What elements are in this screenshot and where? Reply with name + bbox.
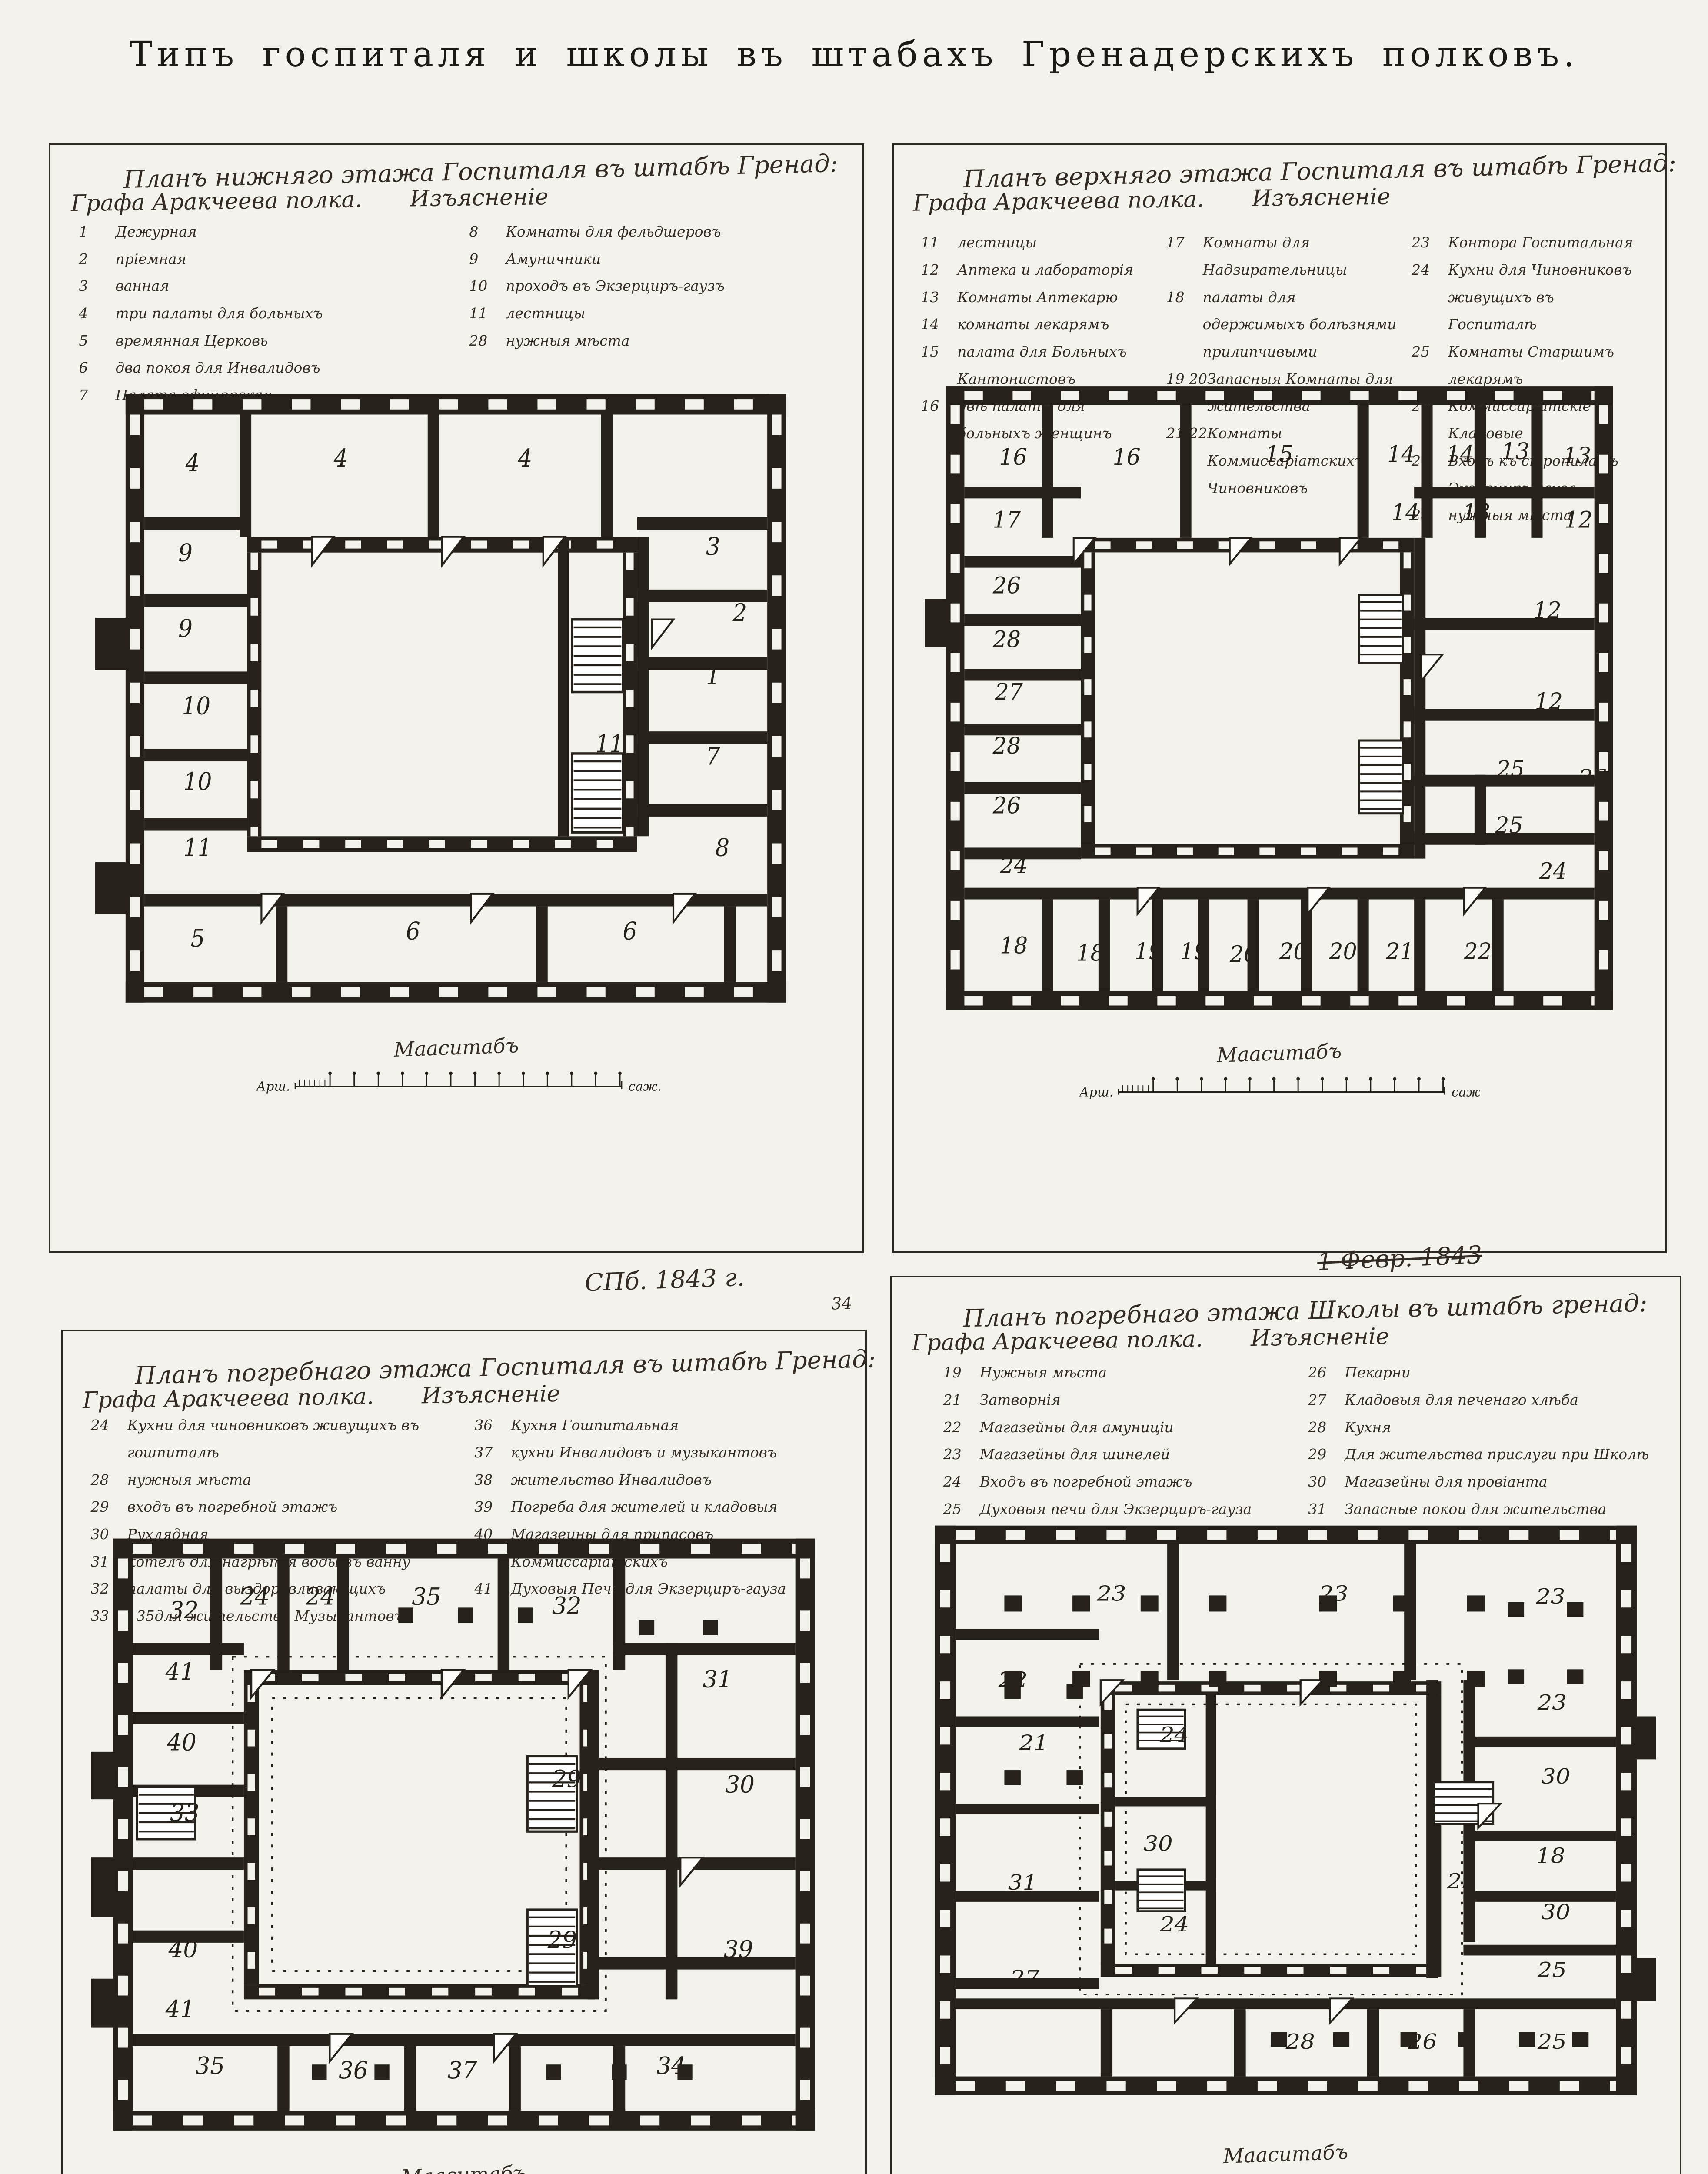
room-number: 30 — [1542, 1764, 1571, 1788]
legend-item-number: 8 — [469, 218, 506, 246]
legend-item: 11лестницы — [921, 229, 1155, 257]
scale-block: Мааситабъарш.саж. — [63, 2163, 865, 2174]
room-number: 18 — [1076, 940, 1104, 967]
room-number: 12 — [1565, 507, 1592, 533]
legend-item-text: Комнаты для Надзирательницы — [1203, 229, 1401, 283]
room-number: 24 — [1159, 1723, 1189, 1747]
room-number: 26 — [992, 793, 1021, 819]
scale-block: МааситабъАрш.саж. — [50, 1036, 862, 1099]
room-number: 16 — [1112, 444, 1140, 471]
legend-item: 8Комнаты для фельдшеровъ — [469, 218, 842, 246]
legend-item: 39Погреба для жителей и кладовыя — [474, 1494, 845, 1521]
legend-item: 19Нужныя мѣста — [943, 1359, 1295, 1387]
floor-plan-drawing: 23232322213127233018302524302429282625 — [916, 1515, 1656, 2106]
legend-item-number: 28 — [469, 327, 506, 355]
room-number: 32 — [169, 1596, 199, 1624]
legend-item-number: 11 — [921, 229, 957, 257]
legend-item-number: 12 — [921, 257, 957, 284]
room-number: 13 — [1502, 438, 1529, 465]
room-number: 15 — [1265, 441, 1293, 468]
legend-title: Изъясненіе — [1251, 1324, 1389, 1351]
legend-item-text: пріемная — [115, 246, 452, 273]
legend-item: 28Кухня — [1308, 1414, 1660, 1441]
legend-item: 14комнаты лекарямъ — [921, 311, 1155, 338]
legend-item: 21Затворнія — [943, 1387, 1295, 1414]
room-number: 28 — [1285, 2030, 1315, 2054]
room-number: 23 — [1097, 1581, 1126, 1606]
legend-item-number: 28 — [91, 1467, 127, 1494]
scanned-sheet: Типъ госпиталя и школы въ штабахъ Гренад… — [0, 0, 1708, 2174]
room-number: 12 — [1535, 689, 1563, 715]
panel-hospital-ground-floor: Планъ нижняго этажа Госпиталя въ штабѣ Г… — [49, 143, 864, 1253]
room-number: 26 — [1408, 2030, 1437, 2054]
room-number: 25 — [1496, 756, 1524, 783]
legend-title: Изъясненіе — [410, 184, 548, 212]
legend-item-number: 38 — [474, 1467, 511, 1494]
scale-block: Мааситабъарш.саж. — [892, 2142, 1680, 2174]
legend-item-text: ванная — [115, 273, 452, 300]
legend-item-text: лестницы — [957, 229, 1155, 257]
legend-item: 27Кладовыя для печенаго хлѣба — [1308, 1387, 1660, 1414]
room-number: 37 — [447, 2056, 477, 2084]
room-number: 30 — [725, 1770, 755, 1798]
legend-item: 26Пекарни — [1308, 1359, 1660, 1387]
room-number: 21 — [1019, 1731, 1049, 1755]
legend-item-text: Амуничники — [506, 246, 842, 273]
room-number: 6 — [623, 917, 637, 946]
legend-item: 17Комнаты для Надзирательницы — [1166, 229, 1401, 283]
legend-item: 24Кухни для чиновниковъ живущихъ въ гошп… — [91, 1412, 462, 1466]
room-number: 40 — [168, 1935, 198, 1963]
room-number: 35 — [195, 2052, 225, 2080]
legend-item-number: 27 — [1308, 1387, 1345, 1414]
legend-item-number: 10 — [469, 273, 506, 300]
legend-item-number: 24 — [943, 1468, 980, 1496]
legend: 19Нужныя мѣста21Затворнія22Магазейны для… — [919, 1359, 1660, 1523]
legend-item-text: Аптека и лабораторія — [957, 257, 1155, 284]
room-number: 8 — [715, 833, 729, 862]
archive-annotation-1843: СПб. 1843 г. 34 — [584, 1264, 745, 1297]
room-number: 18 — [1536, 1844, 1565, 1868]
room-number: 23 — [1536, 1584, 1565, 1608]
ruler-unit-label: саж. — [629, 1079, 662, 1094]
legend-column: 1Дежурная2пріемная3ванная4три палаты для… — [79, 218, 452, 409]
room-number: 20 — [1229, 941, 1258, 968]
legend-item-number: 11 — [469, 300, 506, 327]
legend-item: 36Кухня Гошпитальная — [474, 1412, 845, 1439]
legend-item-text: Дежурная — [115, 218, 452, 246]
room-number: 11 — [595, 729, 624, 758]
ruler-unit-label: саж. — [1452, 1084, 1480, 1099]
legend-item-number: 24 — [91, 1412, 127, 1466]
room-number: 4 — [333, 444, 348, 473]
room-number: 35 — [412, 1582, 441, 1610]
legend-column: 26Пекарни27Кладовыя для печенаго хлѣба28… — [1308, 1359, 1660, 1523]
legend-column: 19Нужныя мѣста21Затворнія22Магазейны для… — [943, 1359, 1295, 1523]
room-number: 39 — [723, 1935, 753, 1963]
legend-title: Изъясненіе — [422, 1381, 560, 1409]
room-number: 27 — [1010, 1966, 1039, 1990]
scale-label: Мааситабъ — [1217, 1039, 1342, 1067]
room-number: 20 — [1328, 939, 1357, 965]
room-number: 34 — [656, 2052, 686, 2080]
legend-item: 28нужныя мѣста — [91, 1467, 462, 1494]
legend-item-text: Кухни для Чиновниковъ живущихъ въ Госпит… — [1448, 257, 1646, 338]
legend-item: 23Контора Госпитальная — [1412, 229, 1646, 257]
room-number: 9 — [178, 614, 193, 643]
room-number: 24 — [999, 853, 1028, 879]
room-number: 19 — [1135, 939, 1162, 965]
room-number: 30 — [1144, 1831, 1173, 1856]
legend-item-text: Контора Госпитальная — [1448, 229, 1646, 257]
room-number: 27 — [995, 679, 1023, 706]
legend-item: 37кухни Инвалидовъ и музыкантовъ — [474, 1439, 845, 1467]
legend-item-number: 4 — [79, 300, 115, 327]
room-number: 31 — [1008, 1871, 1037, 1895]
annotation-text: СПб. 1843 г. — [584, 1264, 745, 1297]
legend-item-number: 37 — [474, 1439, 511, 1467]
room-number: 2 — [732, 598, 747, 627]
room-number: 13 — [1563, 443, 1591, 469]
page-title: Типъ госпиталя и школы въ штабахъ Гренад… — [0, 34, 1708, 74]
legend-item-text: Для жительства прислуги при Школѣ — [1345, 1441, 1660, 1468]
room-number: 20 — [1279, 939, 1307, 965]
room-number: 36 — [339, 2056, 368, 2084]
legend-item: 22Магазейны для амуниціи — [943, 1414, 1295, 1441]
room-number: 18 — [1000, 933, 1028, 959]
scale-ruler: арш.саж. — [1081, 2172, 1491, 2174]
floor-plan-drawing: 1616151414131314131726282728262412121225… — [925, 377, 1634, 1019]
legend-item: 2пріемная — [79, 246, 452, 273]
room-number: 7 — [706, 742, 720, 770]
legend-item-text: проходъ въ Экзерциръ-гаузъ — [506, 273, 842, 300]
legend-item: 29Для жительства прислуги при Школѣ — [1308, 1441, 1660, 1468]
legend-item-text: Магазейны для амуниціи — [980, 1414, 1295, 1441]
room-number: 28 — [992, 627, 1021, 653]
legend-item-number: 24 — [1412, 257, 1448, 338]
legend-item-number: 18 — [1166, 284, 1203, 366]
legend-item: 29входъ въ погребной этажъ — [91, 1494, 462, 1521]
room-number: 12 — [1533, 597, 1561, 624]
legend-item-text: Кухни для чиновниковъ живущихъ въ гошпит… — [127, 1412, 462, 1466]
legend-title: Изъясненіе — [1252, 183, 1391, 211]
legend-item-number: 29 — [1308, 1441, 1345, 1468]
legend-item-number: 2 — [79, 246, 115, 273]
scale-label: Мааситабъ — [1223, 2140, 1349, 2168]
legend-item-text: Пекарни — [1345, 1359, 1660, 1387]
legend-item: 24Входъ въ погребной этажъ — [943, 1468, 1295, 1496]
scale-ruler: Арш.саж. — [245, 1065, 667, 1099]
legend-item: 5времянная Церковь — [79, 327, 452, 355]
legend-column: 8Комнаты для фельдшеровъ9Амуничники10про… — [469, 218, 842, 409]
room-number: 5 — [190, 924, 205, 953]
room-number: 19 — [1180, 939, 1208, 965]
legend-item-text: два покоя для Инвалидовъ — [115, 354, 452, 382]
room-number: 10 — [183, 767, 212, 796]
room-number: 23 — [1319, 1581, 1348, 1606]
room-number: 22 — [998, 1667, 1028, 1692]
legend-item-number: 21 — [943, 1387, 980, 1414]
legend-item: 4три палаты для больныхъ — [79, 300, 452, 327]
legend-item-text: Погреба для жителей и кладовыя — [511, 1494, 845, 1521]
legend-item-text: три палаты для больныхъ — [115, 300, 452, 327]
legend-item: 11лестницы — [469, 300, 842, 327]
room-number: 1 — [706, 661, 720, 690]
legend-item-number: 23 — [943, 1441, 980, 1468]
legend-item-number: 14 — [921, 311, 957, 338]
legend-item-text: нужныя мѣста — [127, 1467, 462, 1494]
legend-item: 24Кухни для Чиновниковъ живущихъ въ Госп… — [1412, 257, 1646, 338]
room-number: 14 — [1387, 441, 1415, 468]
legend-item-text: Кухня — [1345, 1414, 1660, 1441]
room-number: 25 — [1537, 1957, 1567, 1982]
legend-item: 6два покоя для Инвалидовъ — [79, 354, 452, 382]
legend-item-number: 5 — [79, 327, 115, 355]
legend-item: 3ванная — [79, 273, 452, 300]
room-number: 13 — [1462, 500, 1490, 526]
annotation-mark: 34 — [831, 1294, 852, 1314]
legend-item-text: кухни Инвалидовъ и музыкантовъ — [511, 1439, 845, 1467]
room-number: 11 — [183, 833, 212, 862]
scale-label: Мааситабъ — [394, 1034, 519, 1061]
legend-item-text: Затворнія — [980, 1387, 1295, 1414]
legend-item-text: палаты для одержимыхъ болѣзнями прилипчи… — [1203, 284, 1401, 366]
room-number: 40 — [166, 1728, 196, 1756]
floor-plan-drawing: 444321789910101111566 — [95, 383, 818, 1014]
legend-item-text: жительство Инвалидовъ — [511, 1467, 845, 1494]
legend-item: 18палаты для одержимыхъ болѣзнями прилип… — [1166, 284, 1401, 366]
legend-item-number: 36 — [474, 1412, 511, 1439]
legend-item-number: 28 — [1308, 1414, 1345, 1441]
room-number: 10 — [182, 691, 210, 720]
panel-hospital-upper-floor: Планъ верхняго этажа Госпиталя въ штабѣ … — [892, 143, 1667, 1253]
regiment-name: Графа Аракчеева полка. — [912, 1326, 1203, 1356]
legend-item-text: Магазейны для шинелей — [980, 1441, 1295, 1468]
room-number: 26 — [1578, 765, 1607, 792]
room-number: 41 — [165, 1657, 195, 1685]
room-number: 14 — [1392, 500, 1419, 526]
scale-label: Мааситабъ — [401, 2161, 527, 2174]
regiment-name: Графа Аракчеева полка. — [913, 186, 1205, 216]
legend-item-text: Входъ въ погребной этажъ — [980, 1468, 1295, 1496]
legend-item: 13Комнаты Аптекарю — [921, 284, 1155, 311]
legend-item: 23Магазейны для шинелей — [943, 1441, 1295, 1468]
room-number: 31 — [703, 1665, 732, 1693]
legend-item: 30Магазейны для провіанта — [1308, 1468, 1660, 1496]
legend-item-number: 23 — [1412, 229, 1448, 257]
legend-item-number: 39 — [474, 1494, 511, 1521]
legend-item-number: 3 — [79, 273, 115, 300]
legend-item-text: Кладовыя для печенаго хлѣба — [1345, 1387, 1660, 1414]
legend: 1Дежурная2пріемная3ванная4три палаты для… — [79, 218, 842, 409]
room-number: 29 — [547, 1926, 577, 1954]
legend-item-text: комнаты лекарямъ — [957, 311, 1155, 338]
legend-item-number: 17 — [1166, 229, 1203, 283]
legend-item-number: 13 — [921, 284, 957, 311]
floor-plan-drawing: 32242435323141403340413039292935363734 — [91, 1528, 837, 2141]
legend-item-number: 26 — [1308, 1359, 1345, 1387]
legend-item: 38жительство Инвалидовъ — [474, 1467, 845, 1494]
legend-item: 10проходъ въ Экзерциръ-гаузъ — [469, 273, 842, 300]
room-number: 24 — [1159, 1912, 1189, 1936]
room-number: 41 — [165, 1995, 195, 2023]
legend-item-number: 9 — [469, 246, 506, 273]
legend-item-text: Комнаты Аптекарю — [957, 284, 1155, 311]
room-number: 25 — [1537, 2030, 1567, 2054]
room-number: 24 — [240, 1582, 270, 1610]
room-number: 28 — [992, 733, 1021, 760]
room-number: 29 — [1447, 1869, 1476, 1893]
legend-item-number: 22 — [943, 1414, 980, 1441]
legend-item-text: нужныя мѣста — [506, 327, 842, 355]
room-number: 17 — [993, 507, 1021, 533]
room-number: 29 — [552, 1765, 582, 1793]
legend-item-number: 6 — [79, 354, 115, 382]
room-number: 32 — [552, 1592, 582, 1620]
room-number: 21 — [1385, 939, 1414, 965]
room-number: 33 — [170, 1799, 200, 1827]
room-number: 16 — [999, 444, 1027, 471]
room-number: 3 — [706, 532, 720, 561]
legend-item: 28нужныя мѣста — [469, 327, 842, 355]
legend-item: 12Аптека и лабораторія — [921, 257, 1155, 284]
scale-block: МааситабъАрш.саж. — [894, 1041, 1665, 1105]
legend-item-text: Нужныя мѣста — [980, 1359, 1295, 1387]
legend-item-number: 1 — [79, 218, 115, 246]
room-number: 4 — [517, 444, 532, 473]
legend-item-text: Комнаты для фельдшеровъ — [506, 218, 842, 246]
ruler-unit-label: Арш. — [1079, 1084, 1113, 1099]
regiment-name: Графа Аракчеева полка. — [83, 1384, 374, 1414]
legend-item-text: Магазейны для провіанта — [1345, 1468, 1660, 1496]
room-number: 24 — [1538, 858, 1567, 885]
room-number: 9 — [178, 538, 193, 567]
panel-hospital-cellar-floor: Планъ погребнаго этажа Госпиталя въ штаб… — [61, 1330, 867, 2174]
legend-item-number: 30 — [1308, 1468, 1345, 1496]
legend-item-text: входъ въ погребной этажъ — [127, 1494, 462, 1521]
legend-item-number: 19 — [943, 1359, 980, 1387]
legend-item-number: 29 — [91, 1494, 127, 1521]
room-number: 25 — [1495, 813, 1523, 839]
legend-item-text: Кухня Гошпитальная — [511, 1412, 845, 1439]
room-number: 24 — [305, 1582, 335, 1610]
panel-school-cellar-floor: Планъ погребнаго этажа Школы въ штабѣ гр… — [890, 1276, 1681, 2174]
legend-item: 9Амуничники — [469, 246, 842, 273]
legend-item-text: времянная Церковь — [115, 327, 452, 355]
scale-ruler: Арш.саж. — [1079, 1071, 1480, 1105]
room-number: 6 — [406, 917, 420, 946]
room-number: 30 — [1542, 1900, 1571, 1924]
room-number: 14 — [1446, 441, 1474, 468]
room-number: 26 — [992, 573, 1021, 599]
room-number: 4 — [185, 449, 200, 477]
regiment-name: Графа Аракчеева полка. — [70, 187, 362, 217]
legend-item-text: лестницы — [506, 300, 842, 327]
ruler-unit-label: Арш. — [256, 1079, 290, 1094]
room-number: 23 — [1537, 1690, 1567, 1714]
room-number: 22 — [1463, 939, 1492, 965]
legend-item: 1Дежурная — [79, 218, 452, 246]
